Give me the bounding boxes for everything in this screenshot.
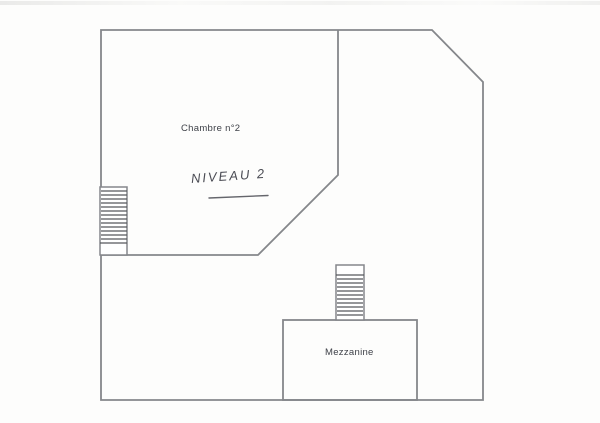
mezzanine-room-outline bbox=[283, 320, 417, 400]
outer-wall bbox=[101, 30, 483, 400]
staircase-mezzanine-outline bbox=[336, 265, 364, 320]
staircase-left bbox=[100, 187, 127, 255]
handwritten-underline bbox=[209, 196, 268, 199]
staircase-mezzanine bbox=[336, 265, 364, 320]
chambre2-partition-wall bbox=[101, 30, 338, 255]
floor-plan-scan: Chambre n°2 Mezzanine NIVEAU 2 bbox=[0, 0, 600, 423]
floor-plan-drawing bbox=[0, 0, 600, 423]
staircase-left-outline bbox=[100, 187, 127, 255]
room-label-mezzanine: Mezzanine bbox=[325, 347, 374, 358]
room-label-chambre2: Chambre n°2 bbox=[181, 123, 240, 134]
